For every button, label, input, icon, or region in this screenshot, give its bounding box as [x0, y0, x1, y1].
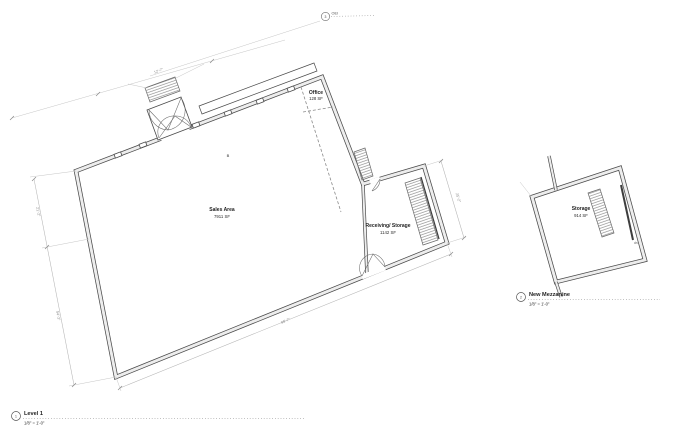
- office-sf: 128 SF: [309, 96, 323, 101]
- mezzanine-plan: dn Storage 914 SF: [520, 156, 645, 297]
- view-scale: 1/8" = 1'-0": [529, 302, 550, 307]
- grid-bubble-number: 3: [325, 15, 327, 19]
- mezzanine-wall-stub-top-core: [549, 156, 556, 190]
- grid-line: [150, 21, 320, 76]
- receiving-sf: 1142 SF: [380, 230, 396, 235]
- sales-area-name[interactable]: Sales Area: [209, 207, 235, 213]
- dim-right: 25'-2": [455, 192, 462, 203]
- floor-plan-drawing: 3 OEI: [0, 0, 681, 431]
- drawing-sheet: 3 OEI: [0, 0, 681, 431]
- room-label-office[interactable]: Office 128 SF: [309, 90, 323, 101]
- sales-area-sf: 7911 SF: [214, 214, 230, 219]
- mezzanine-extension-line: [520, 182, 531, 196]
- entry-stair: [145, 77, 180, 102]
- receiving-name[interactable]: Receiving/ Storage: [365, 223, 410, 229]
- view-number: 1: [15, 415, 17, 419]
- door-tag: B: [227, 153, 230, 158]
- stair-direction-label: dn: [634, 241, 638, 245]
- grid-line-dotted-tail: [331, 16, 374, 17]
- dim-left-upper: 21'-2": [35, 207, 41, 218]
- view-title-name[interactable]: Level 1: [24, 411, 43, 417]
- level1-view-title[interactable]: 1 Level 1 1/8" = 1'-0": [12, 411, 306, 426]
- dim-left-lower: 54'-3": [55, 311, 61, 322]
- dim-top: 12'-7": [153, 67, 164, 74]
- view-number: 2: [520, 296, 522, 300]
- level1-plan: Sales Area 7911 SF Receiving/ Storage 11…: [10, 59, 466, 391]
- view-title-name[interactable]: New Mezzanine: [529, 292, 570, 298]
- mezzanine-view-title[interactable]: 2 New Mezzanine 1/8" = 1'-0": [517, 292, 661, 307]
- view-scale: 1/8" = 1'-0": [24, 421, 45, 426]
- storage-name[interactable]: Storage: [572, 206, 591, 212]
- dim-bottom: 98'-7": [280, 317, 291, 325]
- grid-bubble-label: OEI: [332, 12, 339, 16]
- storage-sf: 914 SF: [574, 213, 588, 218]
